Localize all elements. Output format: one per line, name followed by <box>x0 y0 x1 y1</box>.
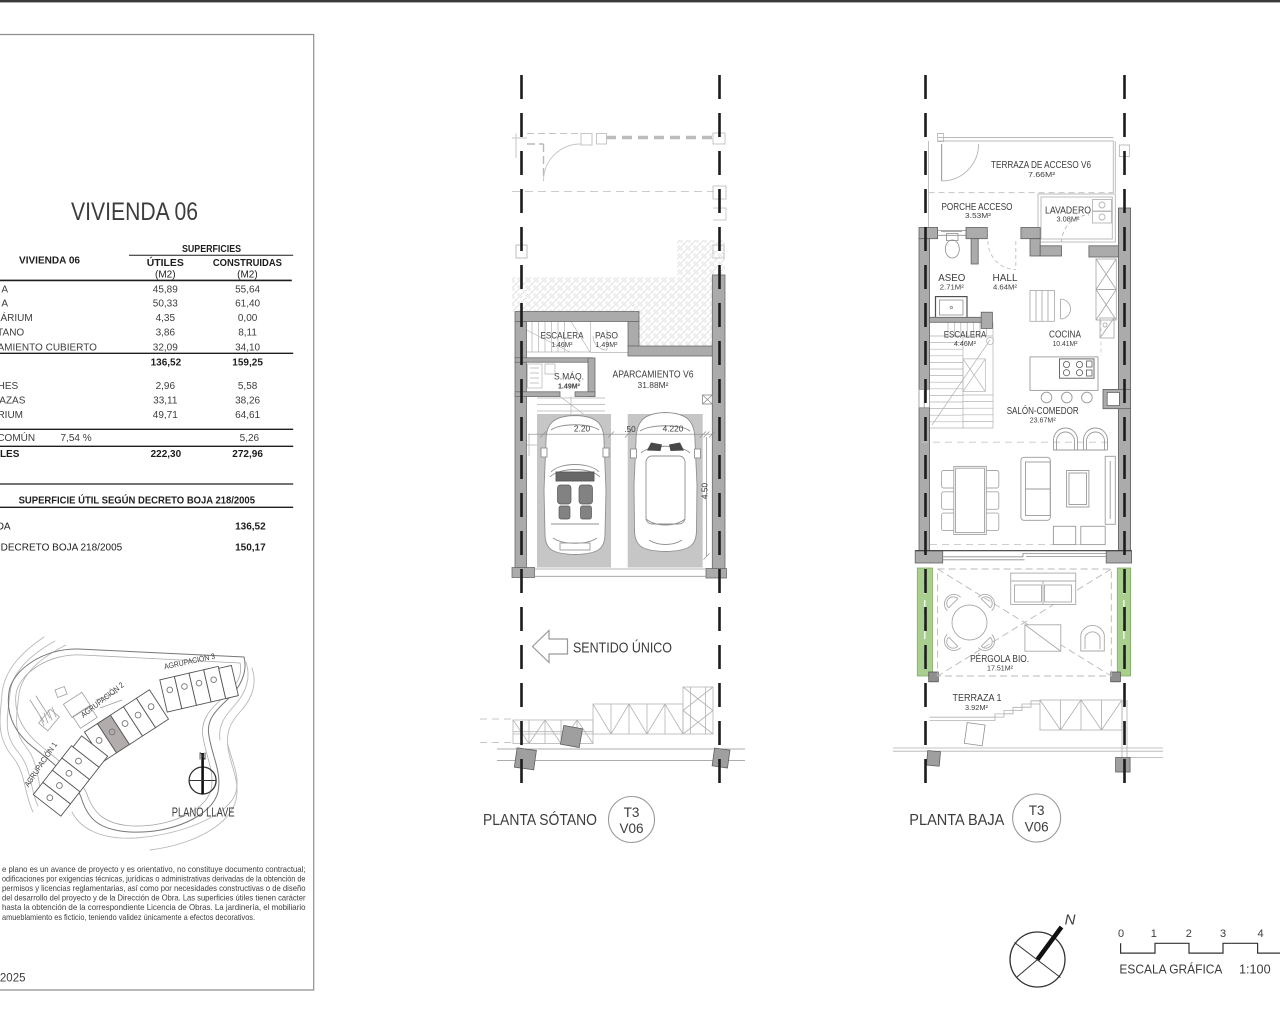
svg-text:10.41M²: 10.41M² <box>1053 339 1079 348</box>
svg-text:0: 0 <box>1118 928 1124 940</box>
svg-text:ESCALA GRÁFICA: ESCALA GRÁFICA <box>1119 962 1222 977</box>
svg-text:222,30: 222,30 <box>151 449 182 460</box>
svg-text:1: 1 <box>1151 928 1157 940</box>
svg-text:5,26: 5,26 <box>240 433 260 444</box>
svg-text:T3: T3 <box>624 805 640 820</box>
svg-text:4: 4 <box>1258 928 1264 940</box>
svg-text:64,61: 64,61 <box>235 410 260 421</box>
svg-text:VIVIENDA 06: VIVIENDA 06 <box>71 198 198 226</box>
svg-text:33,11: 33,11 <box>153 396 178 407</box>
svg-text:PLANTA BAJA: PLANTA BAJA <box>909 812 1004 829</box>
svg-text:amueblamiento es ficticio, ten: amueblamiento es ficticio, teniendo vali… <box>2 913 255 922</box>
svg-text:4.46M²: 4.46M² <box>954 339 977 348</box>
svg-text:1:100: 1:100 <box>1239 962 1271 977</box>
svg-text:17.51M²: 17.51M² <box>987 664 1014 673</box>
svg-text:4.220: 4.220 <box>663 424 684 434</box>
svg-text:.50: .50 <box>624 424 636 434</box>
svg-text:4.50: 4.50 <box>700 483 710 500</box>
svg-text:3,86: 3,86 <box>156 328 176 339</box>
svg-text:V06: V06 <box>1025 820 1049 835</box>
svg-text:N DECRETO BOJA 218/2005: N DECRETO BOJA 218/2005 <box>0 542 123 553</box>
svg-text:TANO: TANO <box>0 328 24 339</box>
svg-text:2,96: 2,96 <box>156 381 176 392</box>
svg-text:3.53M²: 3.53M² <box>965 211 992 220</box>
svg-text:159,25: 159,25 <box>232 358 263 369</box>
svg-text:T3: T3 <box>1029 803 1045 818</box>
svg-text:hasta la obtención de la corre: hasta la obtención de la correspondiente… <box>2 903 306 912</box>
svg-text:CONSTRUIDAS: CONSTRUIDAS <box>213 258 282 269</box>
svg-text:LES: LES <box>0 449 20 460</box>
svg-text:PLANTA SÓTANO: PLANTA SÓTANO <box>483 810 597 829</box>
svg-text:V06: V06 <box>619 821 643 836</box>
svg-text:31.88M²: 31.88M² <box>638 381 669 390</box>
svg-text:COMÚN: COMÚN <box>0 431 35 444</box>
svg-text:AZAS: AZAS <box>0 396 26 407</box>
svg-text:SUPERFICIE ÚTIL SEGÚN DECRETO: SUPERFICIE ÚTIL SEGÚN DECRETO BOJA 218/2… <box>19 494 256 507</box>
svg-text:3: 3 <box>1220 928 1226 940</box>
svg-text:DA: DA <box>0 522 11 533</box>
svg-text:3.08M²: 3.08M² <box>1057 215 1081 224</box>
svg-text:1.46M²: 1.46M² <box>552 340 574 349</box>
svg-text:A: A <box>1 284 8 295</box>
svg-text:7,54 %: 7,54 % <box>61 433 92 444</box>
svg-text:N: N <box>1065 912 1076 929</box>
svg-text:3.92M²: 3.92M² <box>965 703 989 712</box>
svg-text:(M2): (M2) <box>237 270 258 281</box>
svg-text:32,09: 32,09 <box>153 342 178 353</box>
svg-text:N: N <box>199 751 207 763</box>
svg-text:HES: HES <box>0 381 19 392</box>
svg-text:61,40: 61,40 <box>235 299 260 310</box>
svg-text:1.49M²: 1.49M² <box>596 340 619 349</box>
svg-text:45,89: 45,89 <box>153 284 178 295</box>
svg-text:272,96: 272,96 <box>232 449 263 460</box>
svg-text:23.67M²: 23.67M² <box>1030 416 1057 425</box>
svg-text:49,71: 49,71 <box>153 410 178 421</box>
svg-text:RIUM: RIUM <box>0 410 23 421</box>
svg-text:136,52: 136,52 <box>235 522 266 533</box>
svg-text:38,26: 38,26 <box>235 396 260 407</box>
svg-text:APARCAMIENTO V6: APARCAMIENTO V6 <box>613 369 694 381</box>
svg-text:136,52: 136,52 <box>151 358 182 369</box>
svg-text:7.66M²: 7.66M² <box>1028 170 1056 179</box>
svg-text:2: 2 <box>1186 928 1192 940</box>
svg-text:ÚTILES: ÚTILES <box>147 256 184 269</box>
svg-text:SENTIDO ÚNICO: SENTIDO ÚNICO <box>573 640 672 657</box>
svg-text:CAMIENTO CUBIERTO: CAMIENTO CUBIERTO <box>0 342 97 353</box>
svg-text:8,11: 8,11 <box>238 328 257 339</box>
svg-text:A: A <box>1 299 8 310</box>
svg-text:permisos y licencias reglament: permisos y licencias reglamentarias, así… <box>2 884 306 893</box>
svg-text:2025: 2025 <box>0 972 26 984</box>
svg-text:odificaciones por exigencias t: odificaciones por exigencias técnicas, j… <box>2 874 306 883</box>
svg-text:150,17: 150,17 <box>235 542 266 553</box>
svg-text:34,10: 34,10 <box>235 342 260 353</box>
svg-text:2.71M²: 2.71M² <box>940 283 965 292</box>
svg-text:SUPERFICIES: SUPERFICIES <box>182 244 241 255</box>
svg-text:5,58: 5,58 <box>238 381 258 392</box>
svg-text:4.64M²: 4.64M² <box>993 283 1018 292</box>
svg-text:50,33: 50,33 <box>153 299 178 310</box>
svg-text:0,00: 0,00 <box>238 313 258 324</box>
svg-text:VIVIENDA 06: VIVIENDA 06 <box>19 256 80 267</box>
svg-text:LÁRIUM: LÁRIUM <box>0 311 33 324</box>
svg-text:2.20: 2.20 <box>574 424 591 434</box>
svg-text:4,35: 4,35 <box>156 313 176 324</box>
svg-text:e plano es un avance de proyec: e plano es un avance de proyecto y es or… <box>2 865 306 874</box>
svg-text:1.49M²: 1.49M² <box>558 382 581 391</box>
svg-text:55,64: 55,64 <box>235 284 260 295</box>
svg-text:del desarrollo del proyecto y: del desarrollo del proyecto y de la Dire… <box>2 894 306 903</box>
svg-text:PLANO LLAVE: PLANO LLAVE <box>172 806 235 820</box>
svg-text:(M2): (M2) <box>155 270 176 281</box>
